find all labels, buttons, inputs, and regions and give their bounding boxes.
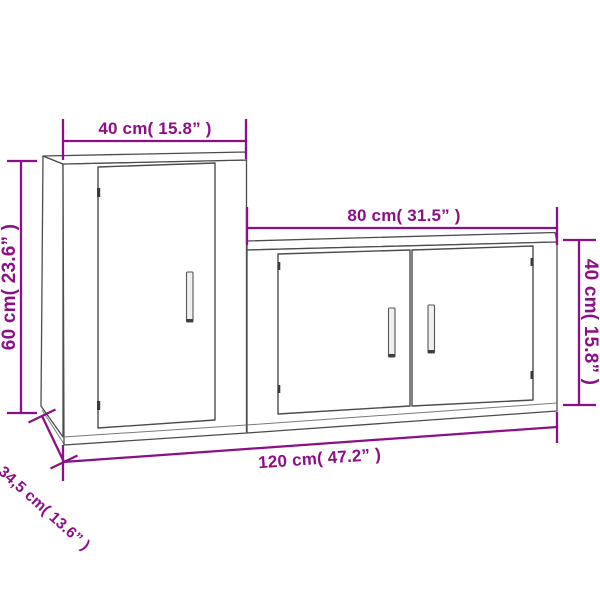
- wall-cabinet: [41, 152, 247, 445]
- sideboard-right-door-hinge-bottom: [531, 371, 534, 379]
- furniture-dimension-diagram: 40 cm( 15.8” ) 80 cm( 31.5” ) 60 cm( 23.…: [0, 0, 600, 600]
- sideboard-left-door-handle: [389, 308, 396, 357]
- cabinet-door: [98, 163, 215, 428]
- cabinet-door-handle: [187, 272, 194, 322]
- dim-label-total-width: 120 cm( 47.2” ): [258, 445, 382, 473]
- dim-label-cabinet-width: 40 cm( 15.8” ): [98, 119, 211, 138]
- cabinet-door-hinge-bottom: [97, 401, 100, 410]
- dim-label-cabinet-height: 60 cm( 23.6” ): [0, 224, 20, 350]
- dim-label-depth: 34,5 cm( 13.6” ): [0, 463, 93, 554]
- sideboard: [247, 233, 557, 434]
- dimension-cabinet-height: 60 cm( 23.6” ): [0, 161, 37, 413]
- sideboard-right-door-handle: [428, 305, 435, 353]
- dim-label-sideboard-width: 80 cm( 31.5” ): [347, 206, 460, 225]
- sideboard-right-door-hinge-top: [531, 258, 534, 266]
- cabinet-side-face: [41, 156, 63, 437]
- diagram-canvas: 40 cm( 15.8” ) 80 cm( 31.5” ) 60 cm( 23.…: [0, 0, 600, 600]
- sideboard-left-door-hinge-bottom: [278, 385, 281, 393]
- dim-label-sideboard-height: 40 cm( 15.8” ): [580, 259, 600, 385]
- sideboard-left-door-hinge-top: [278, 262, 281, 270]
- cabinet-door-hinge-top: [97, 188, 100, 197]
- dimension-sideboard-height: 40 cm( 15.8” ): [563, 240, 600, 405]
